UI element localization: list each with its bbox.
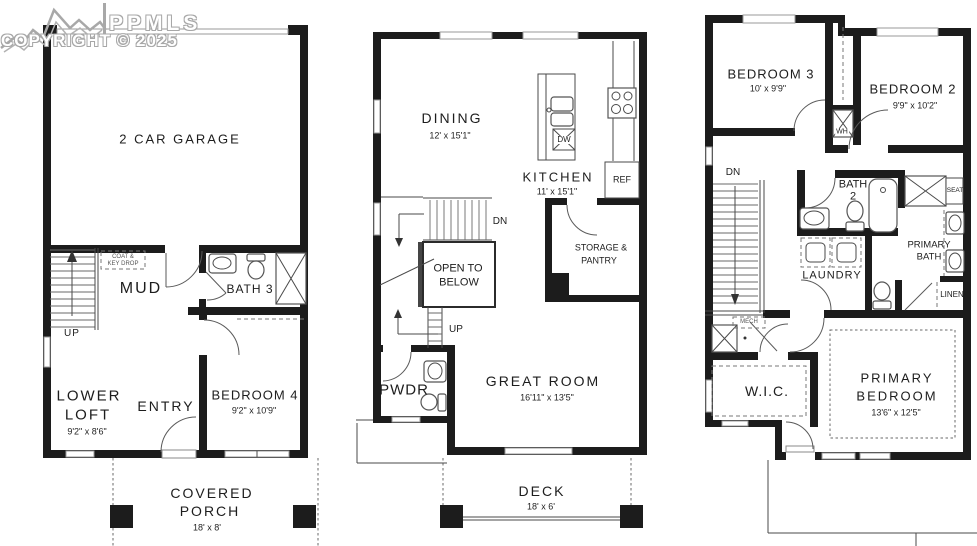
stairs-down: [705, 180, 764, 315]
label-mech: MECH: [740, 319, 758, 325]
cooktop: [608, 88, 636, 118]
bedroom3-door-arc: [794, 100, 825, 131]
label-water-heater: WH: [835, 129, 849, 136]
label-laundry: LAUNDRY: [802, 271, 861, 282]
toilet-tank: [846, 222, 864, 231]
floorplan-image: PPMLS COPYRIGHT © 2025 2 CAR GARAGE COAT…: [0, 0, 977, 546]
label-dining: DINING: [422, 111, 483, 125]
label-bath2-1: BATH: [839, 180, 868, 191]
dims-primary-bedroom: 13'6" x 12'5": [871, 409, 920, 418]
label-coat-key-2: KEY DROP: [108, 261, 139, 267]
label-primary-bedroom-2: BEDROOM: [856, 390, 937, 403]
label-porch-2: PORCH: [180, 504, 241, 518]
label-seat: SEAT: [947, 188, 964, 195]
open-to-below-opening: [423, 242, 495, 307]
stair-arrow-up: [394, 309, 402, 318]
watermark-copyright: COPYRIGHT © 2025: [1, 31, 178, 51]
label-mud: MUD: [120, 281, 162, 297]
laundry-fixtures: [801, 238, 861, 267]
dims-great-room: 16'11" x 13'5": [520, 394, 574, 403]
covered-porch: [110, 458, 318, 546]
label-storage-1: STORAGE &: [575, 244, 627, 253]
label-dishwasher: DW: [556, 136, 571, 144]
label-open-below-2: BELOW: [439, 278, 479, 289]
pwdr-door-arc: [383, 352, 411, 381]
dims-kitchen: 11' x 15'1": [537, 188, 578, 197]
dims-lower-loft: 9'2" x 8'6": [67, 428, 106, 437]
label-deck: DECK: [519, 484, 566, 498]
primary-bedroom-door-arc: [790, 318, 824, 352]
label-up-main: UP: [449, 325, 463, 335]
kitchen-island: [538, 74, 575, 160]
toilet-bowl: [248, 261, 264, 279]
toilet-tank: [438, 394, 446, 411]
label-lower-loft-1: LOWER: [56, 389, 121, 404]
toilet-bowl: [874, 282, 890, 300]
label-porch-1: COVERED: [170, 486, 253, 500]
label-garage: 2 CAR GARAGE: [119, 133, 241, 146]
toilet-bowl: [847, 201, 863, 221]
label-linen: LINEN: [940, 291, 964, 299]
toilet-tank: [873, 301, 891, 309]
label-bath2-2: 2: [850, 192, 856, 203]
bath2-door-arc: [805, 178, 835, 208]
label-bedroom4: BEDROOM 4: [211, 389, 298, 402]
mech-door: [750, 322, 777, 351]
label-up: UP: [64, 329, 80, 339]
hall-closet: [833, 27, 853, 137]
deck-post: [620, 505, 643, 528]
bath3-door-leaf: [206, 272, 226, 293]
pantry-door-arc: [567, 205, 597, 235]
label-dn-upper: DN: [726, 168, 740, 178]
stair-arrow-down: [395, 238, 403, 247]
roof-outline: [768, 460, 977, 546]
lower-level-plan: [43, 25, 318, 546]
label-coat-key-1: COAT &: [112, 254, 134, 260]
porch-post: [293, 505, 316, 528]
sink-basin: [551, 113, 573, 126]
label-open-below-1: OPEN TO: [433, 264, 482, 275]
label-bath3: BATH 3: [226, 283, 273, 295]
bath3-fixtures: [209, 253, 306, 304]
dims-bedroom2: 9'9" x 10'2": [893, 102, 937, 111]
dryer: [832, 238, 861, 267]
label-kitchen: KITCHEN: [522, 171, 593, 184]
label-bedroom2: BEDROOM 2: [869, 83, 956, 96]
label-storage-2: PANTRY: [581, 257, 617, 266]
label-primary-bath-2: BATH: [917, 252, 942, 262]
entry-door-arc: [161, 417, 196, 452]
bathtub: [869, 179, 897, 232]
label-great-room: GREAT ROOM: [486, 374, 600, 388]
entry-door-leaf: [162, 450, 196, 458]
dims-deck: 18' x 6': [527, 503, 555, 512]
garage-mud-door-arc: [166, 251, 202, 287]
laundry-door-arc: [801, 280, 831, 310]
dims-porch: 18' x 8': [193, 524, 221, 533]
washer: [801, 238, 830, 267]
label-pwdr: PWDR: [379, 383, 429, 398]
bedroom4-door-arc: [204, 320, 239, 355]
dims-dining: 12' x 15'1": [429, 132, 470, 141]
dims-bedroom4: 9'2" x 10'9": [232, 407, 276, 416]
sink-basin: [551, 97, 573, 111]
label-bedroom3: BEDROOM 3: [727, 68, 814, 81]
toilet-tank: [247, 254, 265, 261]
porch-post: [110, 505, 133, 528]
label-wic: W.I.C.: [745, 384, 789, 398]
label-refrigerator: REF: [613, 176, 631, 185]
stairs-up: [50, 248, 98, 330]
label-primary-bath-1: PRIMARY: [907, 240, 950, 250]
label-entry: ENTRY: [137, 399, 194, 413]
label-dn: DN: [493, 217, 507, 227]
roof-outline: [356, 420, 447, 463]
label-primary-bedroom-1: PRIMARY: [861, 372, 934, 385]
linen-door: [905, 283, 932, 310]
label-lower-loft-2: LOFT: [65, 408, 111, 423]
exterior-door-arc: [786, 422, 813, 449]
main-level-plan: [356, 32, 647, 528]
exterior-door-leaf: [786, 446, 814, 452]
deck-post: [440, 505, 463, 528]
dims-bedroom3: 10' x 9'9": [750, 85, 786, 94]
